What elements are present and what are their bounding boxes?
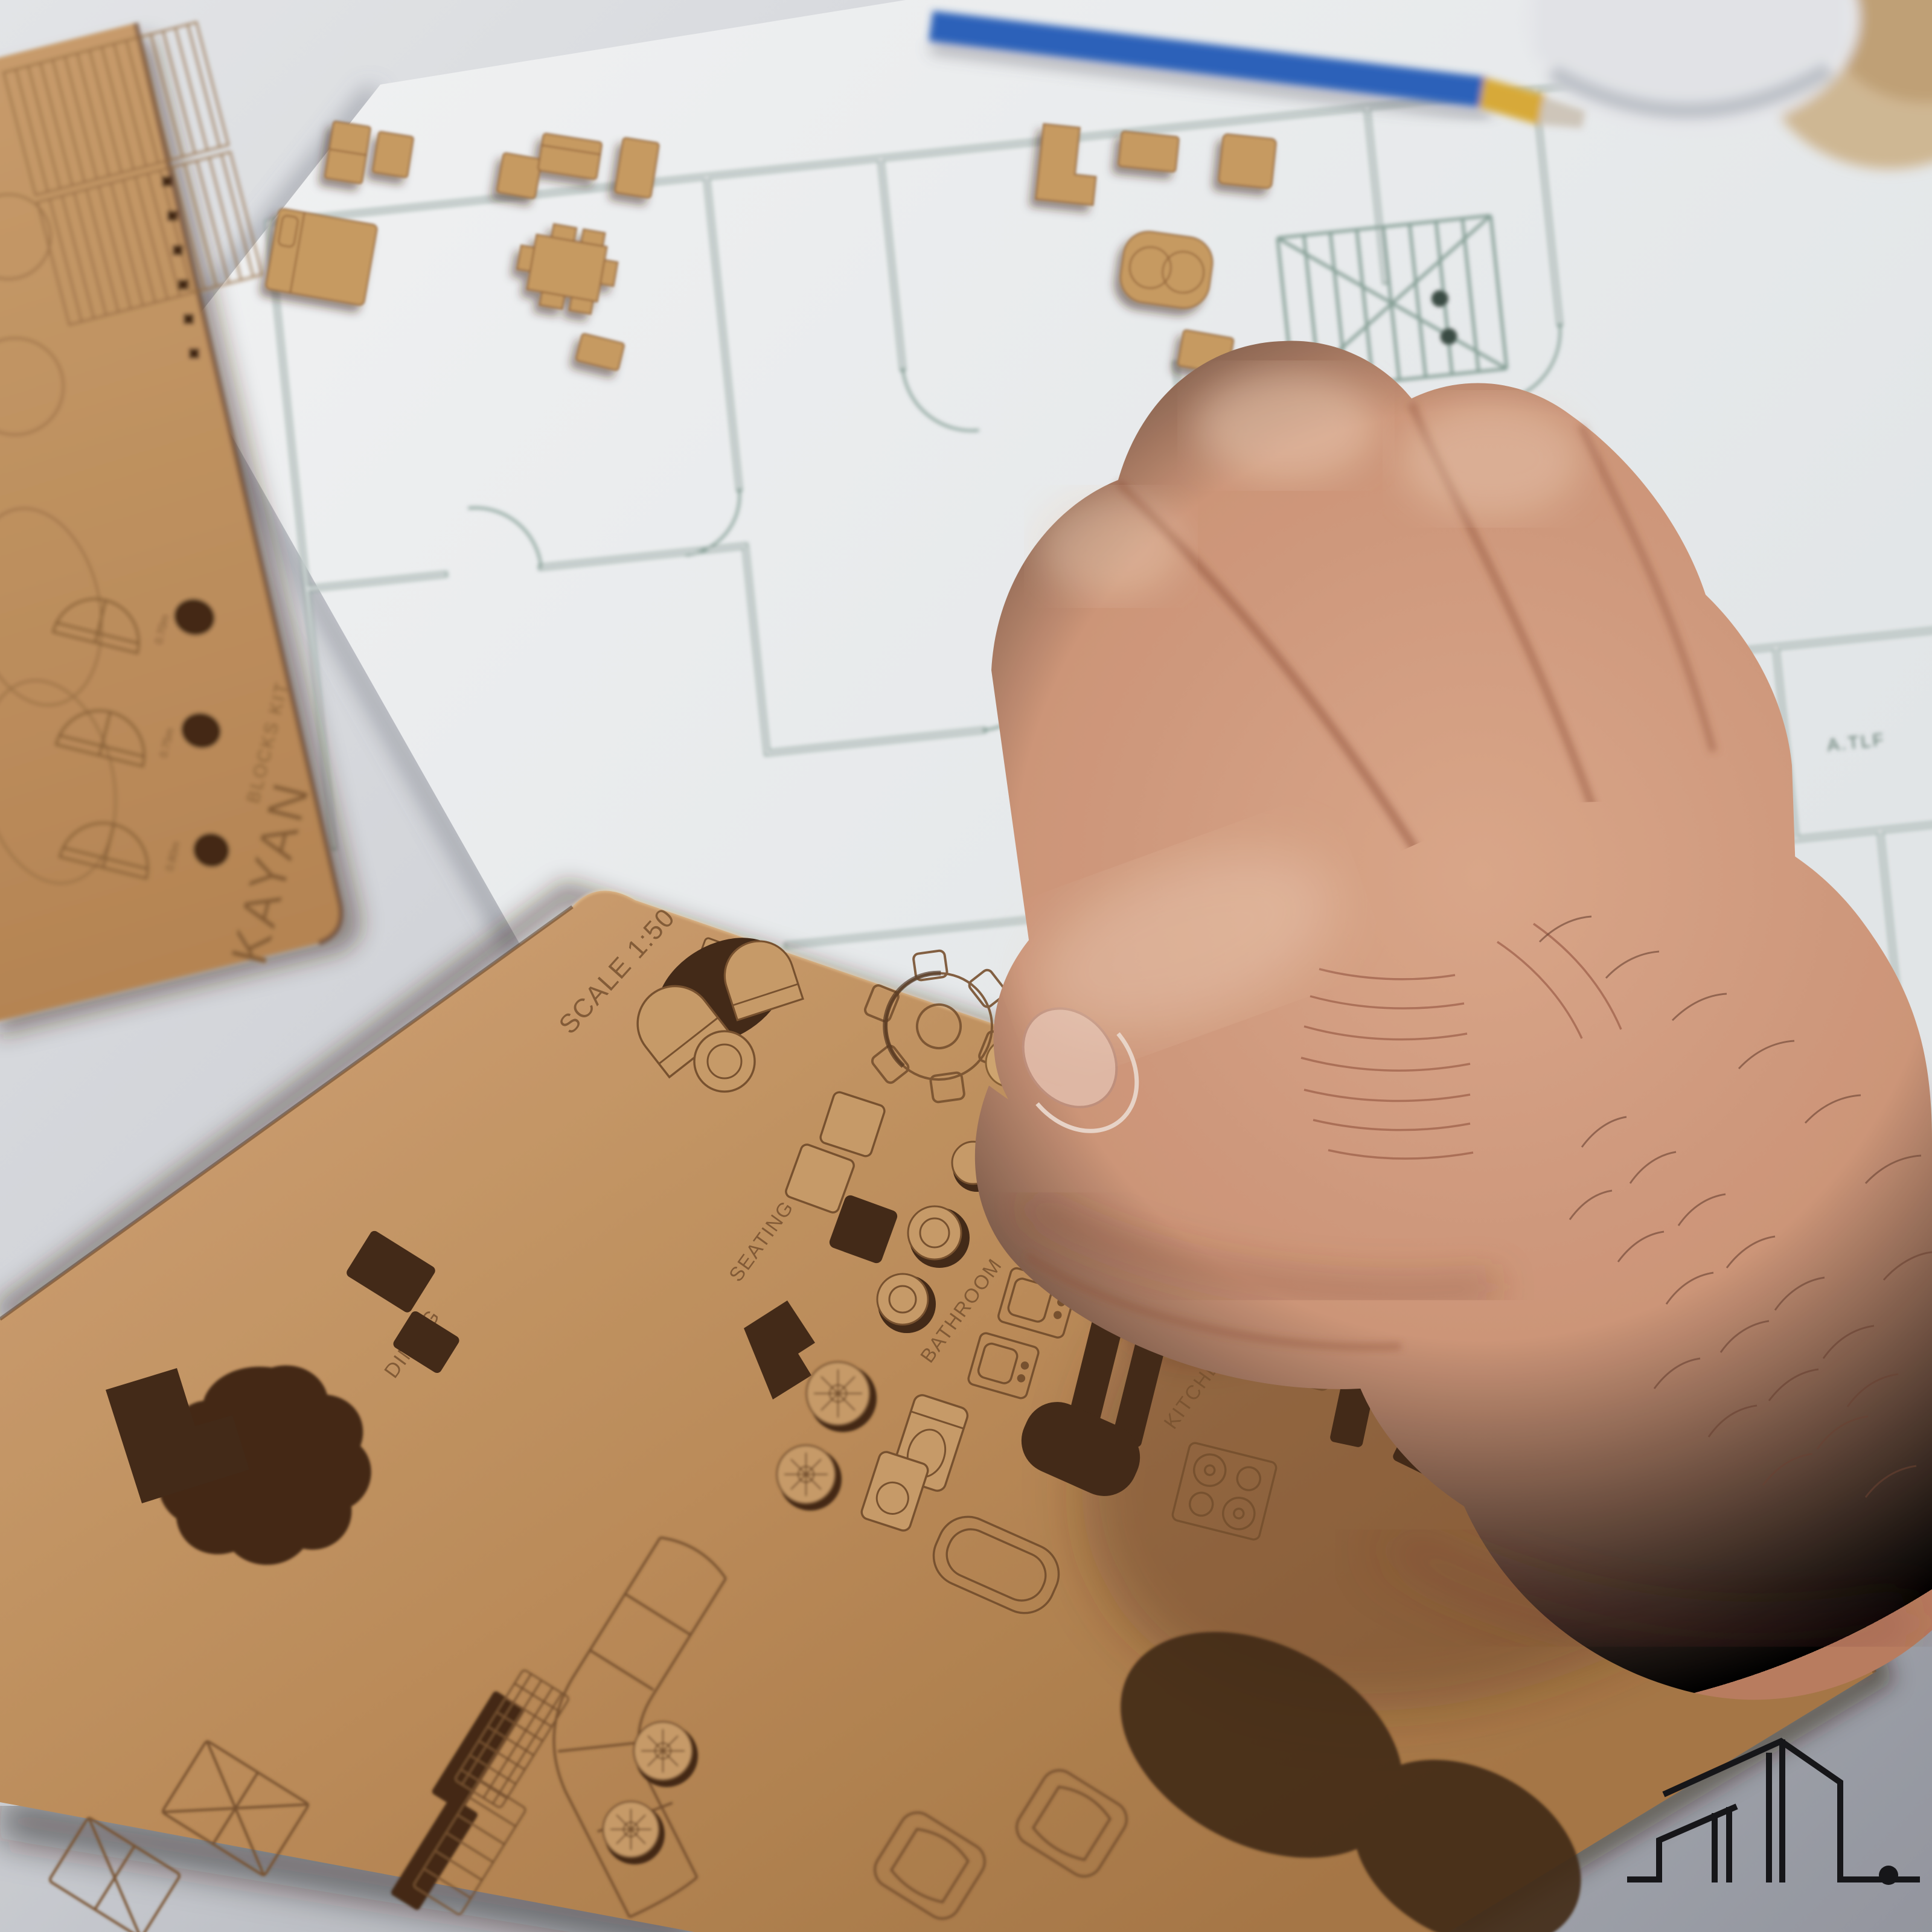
vignette — [0, 0, 1932, 1932]
photo-canvas: A.TLT KIT KIT A.TLF — [0, 0, 1932, 1932]
photo-architectural-model-kit: A.TLT KIT KIT A.TLF — [0, 0, 1932, 1932]
